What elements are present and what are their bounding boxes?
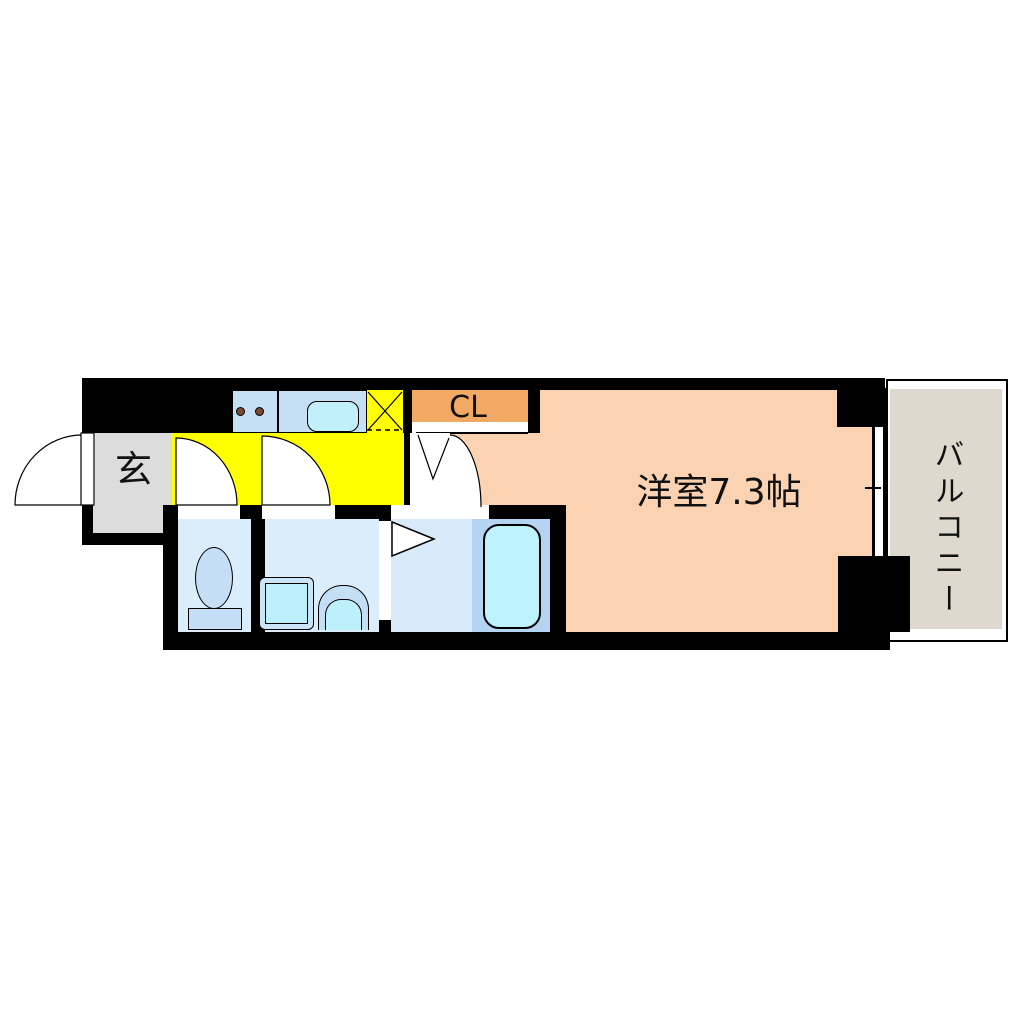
closet-label: CL: [412, 391, 524, 424]
wall-toilet-left: [163, 505, 178, 650]
main-room-label: 洋室7.3帖: [566, 473, 872, 513]
bath-folding-door: [388, 518, 440, 563]
wall-cl-left: [403, 378, 412, 433]
pillar-top-right: [837, 388, 886, 427]
wall-bottom: [163, 632, 890, 650]
pillar-bottom-right: [838, 556, 910, 632]
wall-cl-right: [528, 378, 540, 433]
floor-plan: バルコニー CL: [0, 0, 1020, 1020]
counter-divider: [277, 390, 279, 433]
stove-burner-1: [236, 407, 245, 416]
wall-top: [232, 378, 885, 390]
washroom-door-swing: [256, 428, 336, 510]
washing-machine-inner: [265, 583, 308, 624]
toilet-tank: [188, 608, 242, 630]
bathtub: [483, 524, 541, 629]
wall-top-left: [82, 378, 232, 433]
stove-burner-2: [255, 407, 264, 416]
toilet-door-swing: [170, 430, 245, 510]
washbasin-inner: [325, 599, 362, 630]
refrigerator-space-marks: [367, 390, 403, 433]
wall-bath-right: [550, 505, 566, 632]
entrance-door-swing: [10, 425, 100, 510]
room-entry-door: [410, 432, 490, 522]
genkan-alcove-floor: [93, 505, 163, 533]
main-room-floor-2: [540, 390, 566, 519]
genkan-label: 玄: [95, 450, 172, 491]
window-line-left: [872, 427, 875, 556]
toilet-bowl: [195, 547, 233, 609]
window-line-right: [883, 427, 886, 556]
